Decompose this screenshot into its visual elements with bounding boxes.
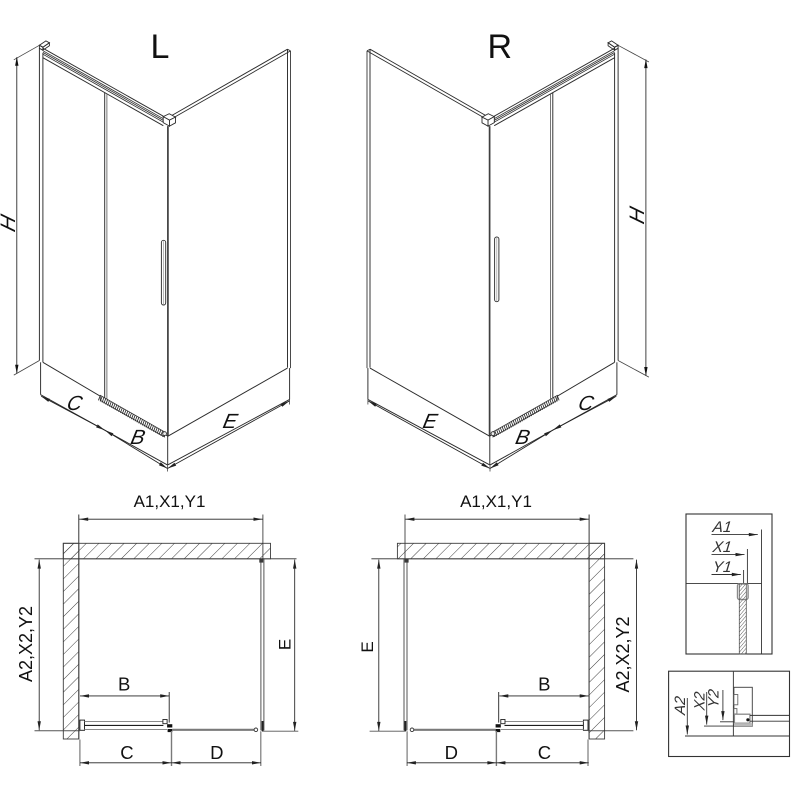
svg-text:Y2: Y2	[706, 688, 723, 709]
svg-text:A2,X2,Y2: A2,X2,Y2	[613, 616, 633, 692]
svg-text:C: C	[120, 742, 133, 763]
svg-text:Y1: Y1	[712, 559, 733, 576]
svg-text:A2,X2,Y2: A2,X2,Y2	[16, 606, 36, 682]
svg-text:E: E	[358, 641, 377, 652]
svg-text:A1: A1	[711, 519, 733, 536]
svg-text:C: C	[538, 742, 551, 763]
svg-text:B: B	[538, 674, 550, 695]
svg-text:D: D	[445, 742, 458, 763]
svg-text:A1,X1,Y1: A1,X1,Y1	[460, 492, 532, 511]
svg-text:R: R	[488, 28, 513, 66]
svg-text:D: D	[210, 742, 223, 763]
svg-text:A2: A2	[672, 695, 689, 717]
svg-text:E: E	[276, 639, 295, 650]
svg-text:A1,X1,Y1: A1,X1,Y1	[134, 492, 206, 511]
svg-text:B: B	[118, 674, 130, 695]
svg-text:L: L	[151, 28, 170, 66]
svg-text:X1: X1	[711, 539, 733, 556]
